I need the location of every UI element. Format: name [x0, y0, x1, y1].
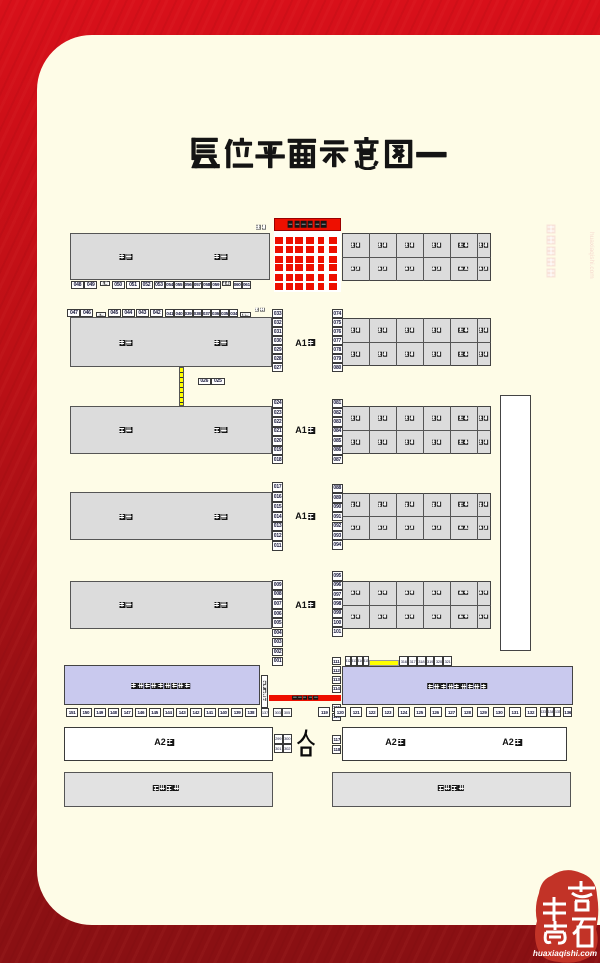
- svg-text:huaxiaqishi.com: huaxiaqishi.com: [533, 949, 597, 958]
